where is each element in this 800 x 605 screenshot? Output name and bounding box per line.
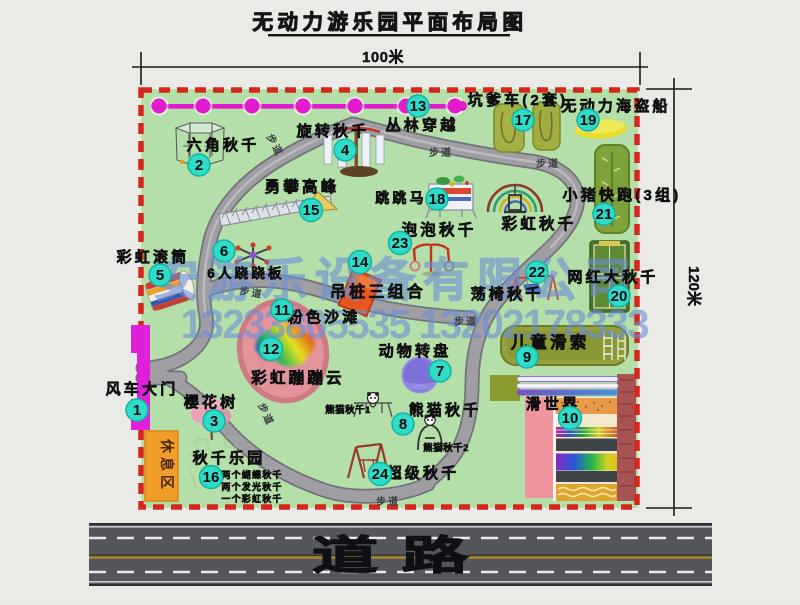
svg-text:风车大门: 风车大门 — [106, 380, 179, 398]
svg-text:7: 7 — [436, 363, 444, 380]
svg-text:120米: 120米 — [685, 266, 703, 307]
svg-text:17: 17 — [515, 112, 532, 129]
svg-text:休息区: 休息区 — [159, 438, 175, 493]
svg-text:步道: 步道 — [429, 146, 453, 159]
svg-text:14: 14 — [352, 254, 369, 271]
svg-text:秋千乐园: 秋千乐园 — [193, 449, 266, 467]
svg-text:六角秋千: 六角秋千 — [187, 136, 260, 154]
svg-text:9: 9 — [523, 349, 531, 366]
svg-text:24: 24 — [372, 466, 389, 483]
svg-text:步道: 步道 — [454, 315, 478, 328]
svg-text:18: 18 — [429, 191, 446, 208]
svg-text:坑爹车(2套): 坑爹车(2套) — [468, 91, 569, 109]
svg-text:丛林穿越: 丛林穿越 — [386, 116, 459, 134]
svg-text:两个发光秋千: 两个发光秋千 — [221, 481, 282, 492]
svg-text:熊猫秋千1: 熊猫秋千1 — [325, 404, 371, 416]
svg-text:动物转盘: 动物转盘 — [379, 342, 452, 360]
svg-text:路: 路 — [402, 533, 469, 578]
svg-text:道: 道 — [312, 533, 378, 578]
svg-text:熊猫秋千: 熊猫秋千 — [409, 401, 482, 419]
svg-text:两个蝴蝶秋千: 两个蝴蝶秋千 — [221, 469, 282, 480]
svg-text:网红大秋千: 网红大秋千 — [567, 268, 658, 286]
svg-text:彩虹蹦蹦云: 彩虹蹦蹦云 — [250, 368, 345, 387]
svg-text:樱花树: 樱花树 — [184, 393, 239, 411]
svg-text:跳跳马: 跳跳马 — [375, 190, 427, 206]
svg-text:勇攀高峰: 勇攀高峰 — [265, 177, 340, 196]
svg-text:13: 13 — [410, 98, 427, 115]
svg-text:22: 22 — [529, 264, 546, 281]
svg-text:5: 5 — [156, 267, 164, 284]
svg-text:一个彩虹秋千: 一个彩虹秋千 — [221, 493, 282, 504]
svg-text:3: 3 — [210, 413, 218, 430]
svg-text:10: 10 — [562, 410, 579, 427]
svg-text:6人跷跷板: 6人跷跷板 — [207, 265, 285, 281]
svg-text:16: 16 — [203, 469, 220, 486]
svg-text:熊猫秋千2: 熊猫秋千2 — [423, 442, 469, 454]
svg-text:步道: 步道 — [536, 157, 560, 170]
svg-text:11: 11 — [274, 302, 290, 319]
svg-text:1: 1 — [133, 402, 141, 419]
svg-text:超级秋千: 超级秋千 — [386, 464, 460, 482]
svg-text:8: 8 — [399, 416, 407, 433]
svg-text:粉色沙滩: 粉色沙滩 — [288, 308, 361, 326]
svg-text:彩虹滚筒: 彩虹滚筒 — [116, 248, 190, 266]
svg-text:12: 12 — [263, 341, 280, 358]
svg-text:吊桩三组合: 吊桩三组合 — [330, 282, 426, 301]
svg-text:旋转秋千: 旋转秋千 — [296, 122, 370, 140]
svg-text:无动力海盗船: 无动力海盗船 — [560, 97, 670, 115]
svg-text:100米: 100米 — [362, 48, 405, 66]
svg-text:步道: 步道 — [376, 495, 400, 508]
svg-text:2: 2 — [195, 157, 203, 174]
svg-text:21: 21 — [596, 206, 613, 223]
svg-text:4: 4 — [341, 142, 350, 159]
svg-text:泡泡秋千: 泡泡秋千 — [402, 220, 477, 239]
svg-text:彩虹秋千: 彩虹秋千 — [501, 214, 577, 233]
svg-text:荡椅秋千: 荡椅秋千 — [471, 285, 544, 303]
svg-text:23: 23 — [392, 235, 409, 252]
svg-text:15: 15 — [303, 202, 320, 219]
svg-text:20: 20 — [611, 288, 628, 305]
svg-text:小猪快跑(3组): 小猪快跑(3组) — [563, 186, 682, 204]
svg-text:无动力游乐园平面布局图: 无动力游乐园平面布局图 — [253, 10, 528, 34]
svg-text:19: 19 — [580, 112, 597, 129]
svg-text:6: 6 — [220, 243, 228, 260]
